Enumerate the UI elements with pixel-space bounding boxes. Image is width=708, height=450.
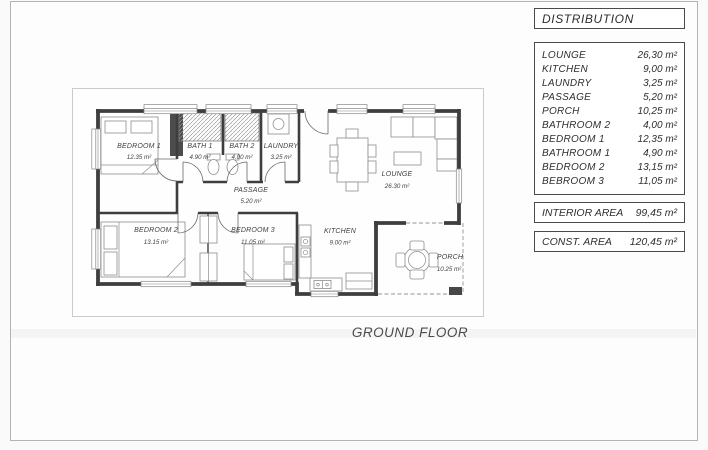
const-area-box: CONST. AREA 120,45 m²	[534, 231, 685, 252]
row-label: BATHROOM 1	[542, 147, 610, 161]
row-label: LOUNGE	[542, 49, 586, 63]
table-row: BEDROOM 112,35 m²	[542, 133, 677, 147]
table-row: PASSAGE5,20 m²	[542, 91, 677, 105]
room-area-lounge: 26.30 m²	[384, 183, 410, 190]
room-area-kitchen: 9.00 m²	[330, 240, 352, 247]
washing-machine	[268, 114, 289, 134]
room-label-laundry: LAUNDRY	[264, 143, 300, 150]
interior-area-label: INTERIOR AREA	[542, 207, 623, 219]
table-row: BATHROOM 14,90 m²	[542, 147, 677, 161]
table-row: LAUNDRY3,25 m²	[542, 77, 677, 91]
distribution-title: DISTRIBUTION	[542, 12, 634, 26]
furniture-laundry	[268, 114, 289, 134]
porch-table	[404, 247, 430, 273]
room-label-porch: PORCH	[437, 254, 464, 261]
row-label: PASSAGE	[542, 91, 591, 105]
room-area-bedroom-1: 12.35 m²	[127, 154, 152, 161]
room-label-kitchen: KITCHEN	[324, 228, 357, 235]
table-row: BATHROOM 24,00 m²	[542, 119, 677, 133]
shower-2	[225, 113, 259, 141]
row-label: BEBROOM 3	[542, 175, 604, 189]
toilet-1	[208, 160, 219, 175]
distribution-table: LOUNGE26,30 m² KITCHEN9,00 m² LAUNDRY3,2…	[534, 42, 685, 195]
furniture-bedroom-3	[244, 244, 295, 280]
row-label: PORCH	[542, 105, 580, 119]
distribution-header: DISTRIBUTION	[534, 8, 685, 29]
row-label: BEDROOM 1	[542, 133, 605, 147]
floor-plan: BEDROOM 1 12.35 m² BATH 1 4.90 m² BATH 2…	[72, 88, 484, 317]
interior-area-box: INTERIOR AREA 99,45 m²	[534, 202, 685, 223]
row-value: 4,90 m²	[643, 147, 677, 161]
row-value: 3,25 m²	[643, 77, 677, 91]
table-row: LOUNGE26,30 m²	[542, 49, 677, 63]
const-area-label: CONST. AREA	[542, 236, 612, 248]
shower-1	[179, 113, 221, 141]
row-value: 12,35 m²	[638, 133, 677, 147]
row-value: 26,30 m²	[638, 49, 677, 63]
room-area-passage: 5.20 m²	[241, 198, 263, 205]
row-value: 13,15 m²	[638, 161, 677, 175]
closets	[200, 213, 217, 284]
room-area-laundry: 3.25 m²	[271, 154, 293, 161]
table-row: BEDROOM 213,15 m²	[542, 161, 677, 175]
sofa	[391, 117, 413, 137]
room-label-lounge: LOUNGE	[382, 171, 413, 178]
row-value: 9,00 m²	[643, 63, 677, 77]
room-area-bath-1: 4.90 m²	[190, 154, 212, 161]
row-label: BATHROOM 2	[542, 119, 610, 133]
row-value: 10,25 m²	[638, 105, 677, 119]
table-row: PORCH10,25 m²	[542, 105, 677, 119]
room-label-bedroom-1: BEDROOM 1	[117, 143, 161, 150]
dining-table	[337, 138, 368, 182]
const-area-value: 120,45 m²	[630, 236, 677, 248]
toilet-2	[227, 160, 238, 175]
table-row: BEBROOM 311,05 m²	[542, 175, 677, 189]
row-value: 4,00 m²	[643, 119, 677, 133]
room-label-bedroom-3: BEDROOM 3	[231, 227, 275, 234]
interior-area-value: 99,45 m²	[636, 207, 677, 219]
furniture-porch	[396, 241, 438, 279]
coffee-table	[394, 152, 421, 165]
plan-caption: GROUND FLOOR	[330, 325, 490, 343]
table-row: KITCHEN9,00 m²	[542, 63, 677, 77]
row-label: LAUNDRY	[542, 77, 592, 91]
row-label: BEDROOM 2	[542, 161, 605, 175]
room-area-bedroom-2: 13.15 m²	[144, 239, 169, 246]
row-value: 11,05 m²	[638, 175, 677, 189]
porch-pillar	[449, 287, 462, 295]
room-area-porch: 10.25 m²	[437, 266, 462, 273]
room-area-bedroom-3: 11.05 m²	[241, 239, 266, 246]
furniture-lounge	[330, 117, 457, 191]
room-label-passage: PASSAGE	[234, 187, 268, 194]
room-area-bath-2: 4.00 m²	[232, 154, 254, 161]
row-label: KITCHEN	[542, 63, 588, 77]
row-value: 5,20 m²	[643, 91, 677, 105]
room-label-bath-1: BATH 1	[187, 143, 212, 150]
room-label-bedroom-2: BEDROOM 2	[134, 227, 178, 234]
room-label-bath-2: BATH 2	[229, 143, 254, 150]
